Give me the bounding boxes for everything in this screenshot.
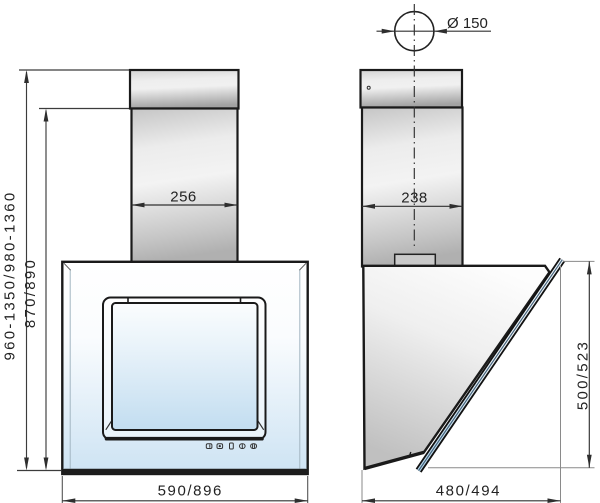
svg-text:590/896: 590/896 [158,482,223,499]
svg-text:Ø 150: Ø 150 [447,15,488,32]
svg-text:960-1350/980-1360: 960-1350/980-1360 [2,190,19,360]
svg-text:870/890: 870/890 [22,258,39,328]
svg-text:480/494: 480/494 [436,482,501,499]
svg-text:256: 256 [170,188,197,205]
svg-text:500/523: 500/523 [575,340,592,410]
